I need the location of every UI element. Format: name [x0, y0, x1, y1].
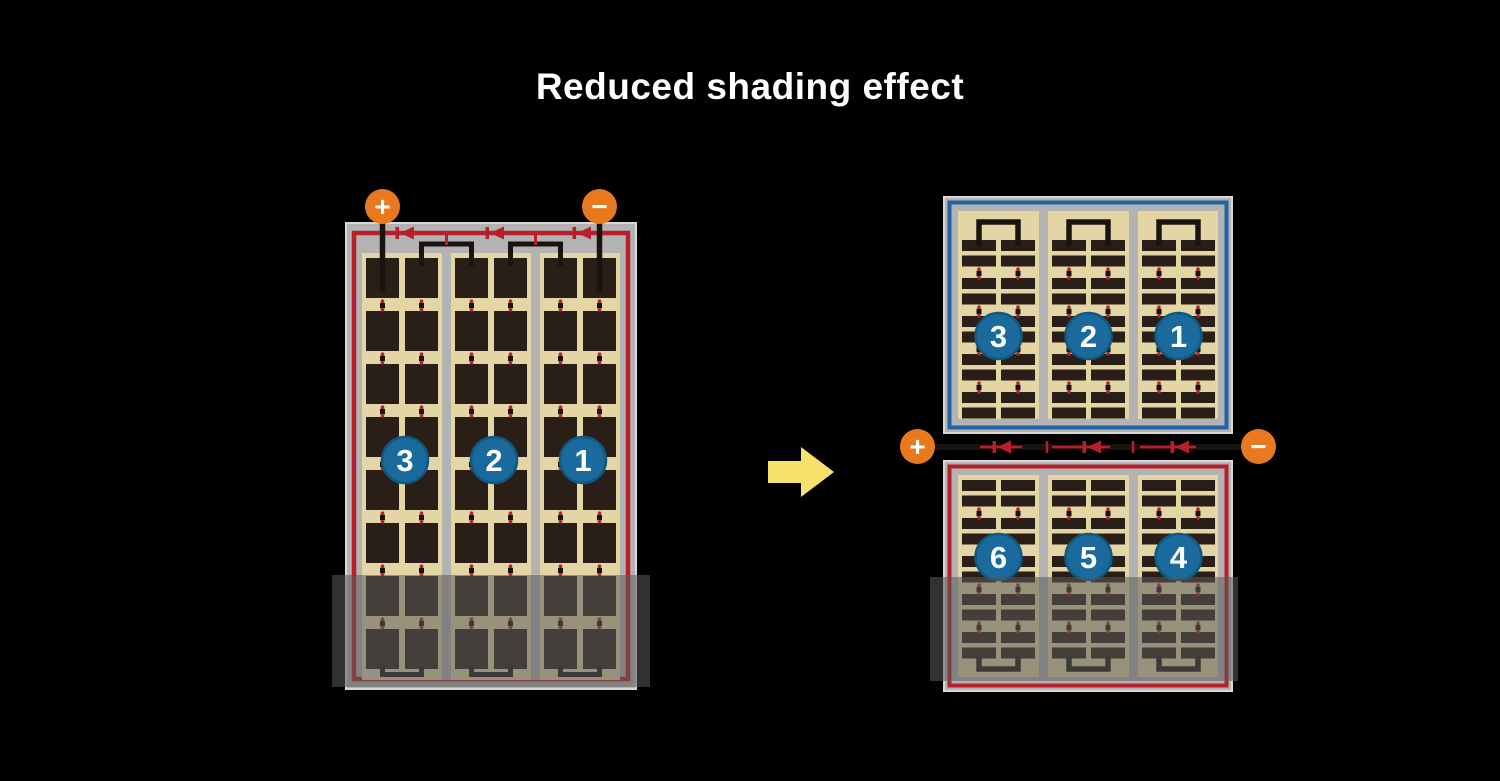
svg-text:4: 4 [1170, 540, 1188, 575]
svg-text:6: 6 [990, 540, 1007, 575]
string-number-circle: 3 [976, 313, 1022, 359]
string-number-circle: 2 [471, 437, 517, 483]
plus-terminal-icon: + [900, 429, 935, 464]
arrow-right-icon [766, 445, 836, 499]
plus-terminal-label: + [909, 433, 925, 461]
string-number-circle: 3 [382, 437, 428, 483]
svg-text:3: 3 [396, 443, 413, 478]
bypass-diode-wiring [890, 425, 1290, 469]
svg-text:1: 1 [574, 443, 591, 478]
minus-terminal-label: − [591, 193, 607, 221]
reduced-shading-diagram: Reduced shading effect + − 321 321 654 +… [0, 0, 1500, 781]
string-number-circle: 5 [1066, 534, 1112, 580]
svg-text:5: 5 [1080, 540, 1097, 575]
plus-terminal-label: + [374, 193, 390, 221]
string-number-circle: 1 [1156, 313, 1202, 359]
minus-terminal-icon: − [582, 189, 617, 224]
string-number-circle: 1 [560, 437, 606, 483]
shading-overlay-left [332, 575, 650, 687]
svg-text:1: 1 [1170, 319, 1187, 354]
shading-overlay-right [930, 577, 1238, 681]
svg-text:2: 2 [1080, 319, 1097, 354]
diagram-title: Reduced shading effect [0, 66, 1500, 108]
minus-terminal-label: − [1250, 433, 1266, 461]
svg-text:3: 3 [990, 319, 1007, 354]
string-number-circle: 4 [1156, 534, 1202, 580]
svg-text:2: 2 [485, 443, 502, 478]
split-upper-panel: 321 [943, 196, 1233, 434]
string-number-circle: 6 [976, 534, 1022, 580]
minus-terminal-icon: − [1241, 429, 1276, 464]
string-number-circle: 2 [1066, 313, 1112, 359]
plus-terminal-icon: + [365, 189, 400, 224]
